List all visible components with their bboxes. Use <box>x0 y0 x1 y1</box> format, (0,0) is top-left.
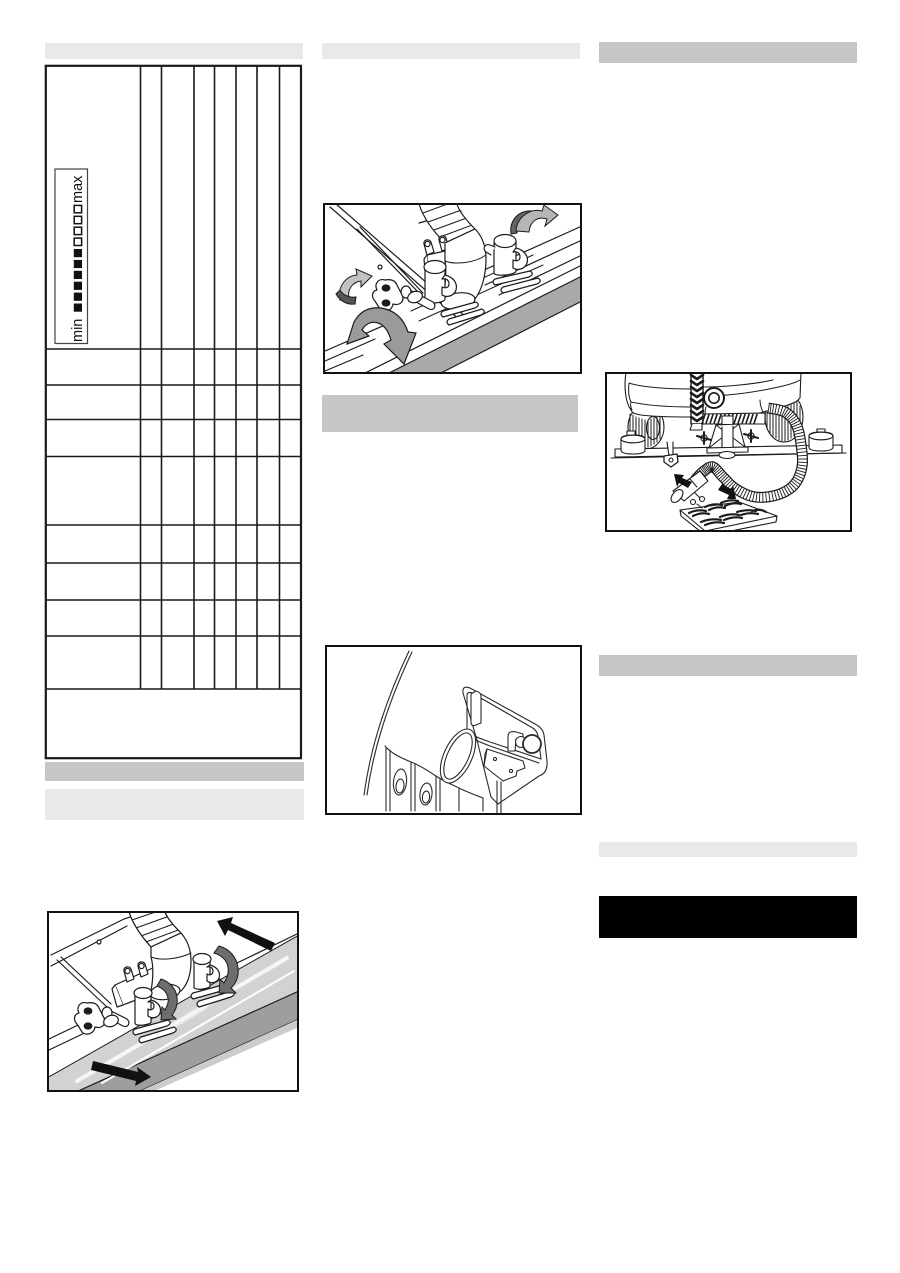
svg-text:min: min <box>70 319 86 342</box>
svg-text:max: max <box>70 175 86 203</box>
